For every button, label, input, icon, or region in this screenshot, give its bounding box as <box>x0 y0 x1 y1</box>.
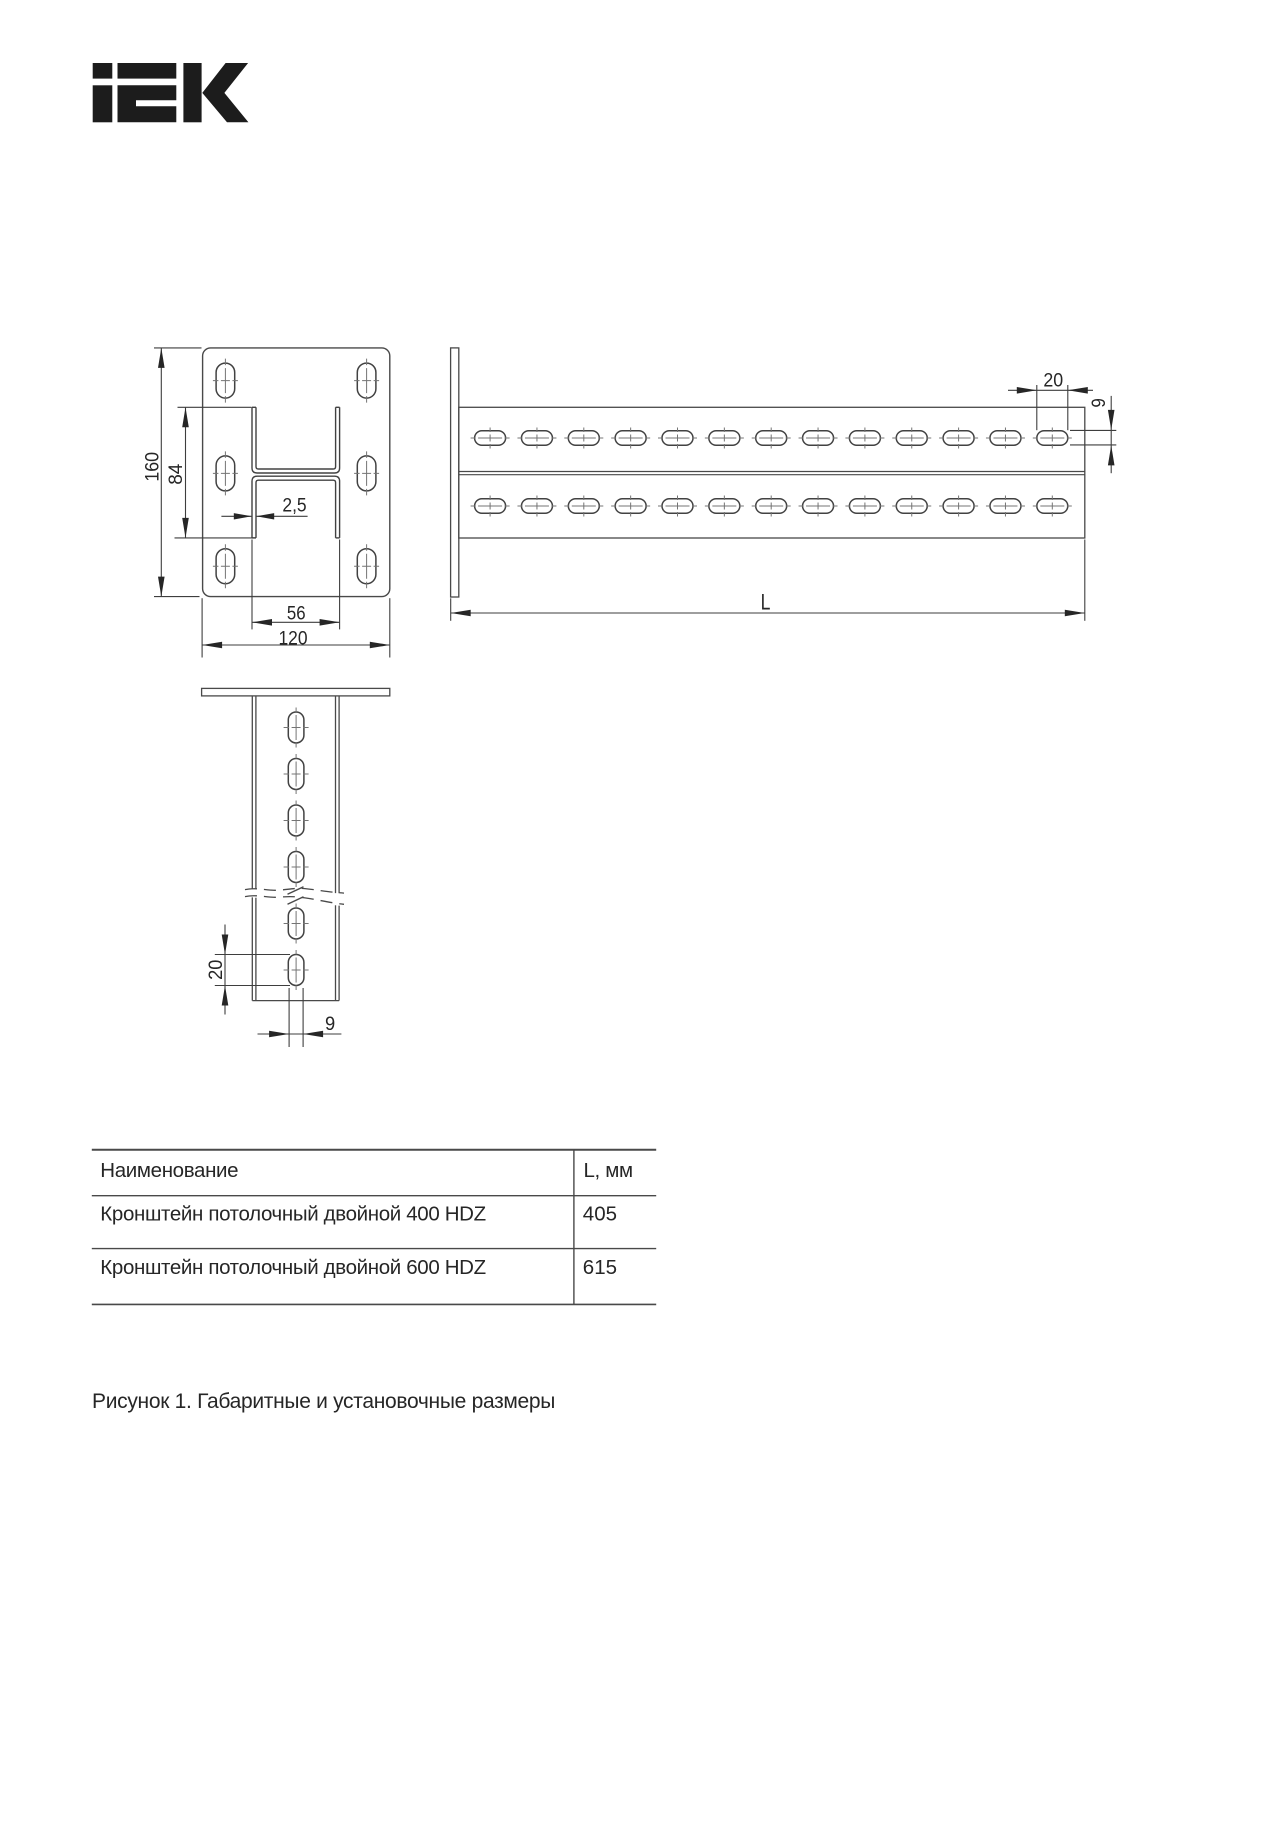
svg-text:Наименование: Наименование <box>100 1159 238 1182</box>
svg-text:L: L <box>761 589 771 614</box>
svg-text:Кронштейн потолочный двойной 6: Кронштейн потолочный двойной 600 HDZ <box>100 1256 486 1279</box>
svg-text:Кронштейн потолочный двойной 4: Кронштейн потолочный двойной 400 HDZ <box>100 1203 486 1226</box>
svg-text:20: 20 <box>1043 370 1063 392</box>
svg-text:9: 9 <box>1088 398 1110 408</box>
svg-text:L, мм: L, мм <box>584 1159 633 1182</box>
svg-text:84: 84 <box>165 464 187 485</box>
svg-text:56: 56 <box>287 603 306 625</box>
svg-text:2,5: 2,5 <box>282 494 306 516</box>
svg-text:20: 20 <box>205 959 227 979</box>
svg-text:615: 615 <box>583 1256 617 1279</box>
svg-text:405: 405 <box>583 1203 617 1226</box>
svg-text:160: 160 <box>141 452 163 482</box>
svg-text:Рисунок 1. Габаритные и устано: Рисунок 1. Габаритные и установочные раз… <box>92 1390 555 1413</box>
svg-text:9: 9 <box>325 1013 335 1035</box>
svg-text:120: 120 <box>278 627 307 649</box>
